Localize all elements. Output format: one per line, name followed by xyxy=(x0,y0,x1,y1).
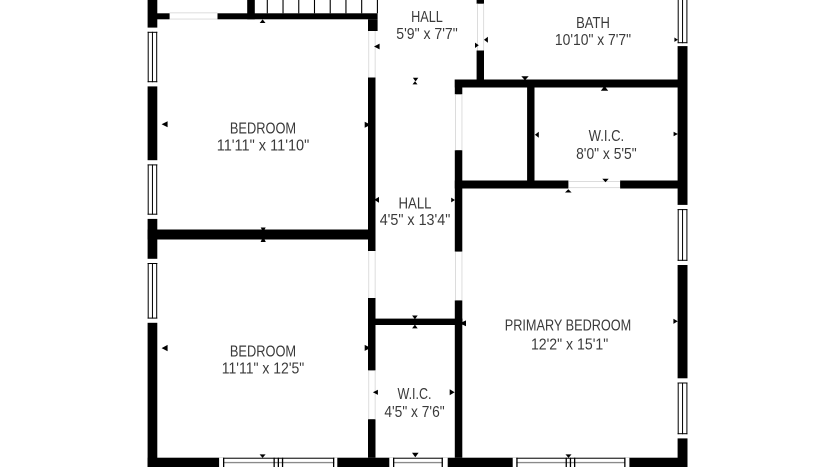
svg-text:5'9" x 7'7": 5'9" x 7'7" xyxy=(396,26,457,43)
svg-text:10'10" x 7'7": 10'10" x 7'7" xyxy=(555,32,631,49)
svg-text:PRIMARY BEDROOM: PRIMARY BEDROOM xyxy=(505,318,632,335)
svg-text:11'11" x 11'10": 11'11" x 11'10" xyxy=(217,138,310,155)
svg-text:BEDROOM: BEDROOM xyxy=(230,343,296,360)
svg-text:W.I.C.: W.I.C. xyxy=(589,128,625,145)
svg-text:11'11" x 12'5": 11'11" x 12'5" xyxy=(222,361,305,378)
svg-text:BEDROOM: BEDROOM xyxy=(230,120,296,137)
svg-text:12'2" x 15'1": 12'2" x 15'1" xyxy=(531,337,608,354)
svg-text:BATH: BATH xyxy=(576,15,610,32)
svg-text:4'5" x 7'6": 4'5" x 7'6" xyxy=(384,404,444,421)
svg-text:HALL: HALL xyxy=(399,195,432,212)
svg-text:HALL: HALL xyxy=(411,9,443,26)
svg-text:W.I.C.: W.I.C. xyxy=(397,386,431,403)
svg-text:4'5" x 13'4": 4'5" x 13'4" xyxy=(380,212,451,229)
svg-text:8'0" x 5'5": 8'0" x 5'5" xyxy=(576,146,637,163)
